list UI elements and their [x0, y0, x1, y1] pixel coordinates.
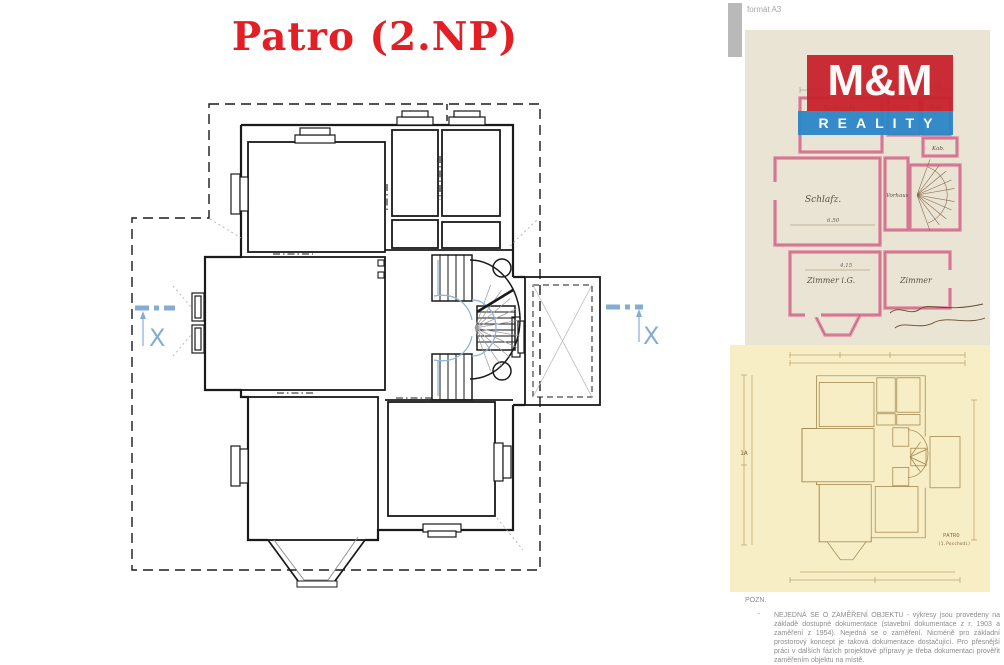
dimension: 4.15	[839, 263, 853, 269]
logo-mm: M&M	[807, 55, 953, 111]
historical-plan-1954: 1A PATRO (1.Poschodí)	[730, 345, 990, 592]
dimension: 6.50	[827, 218, 840, 224]
room-label: Zimmer	[899, 276, 933, 285]
yellow-ref-label: 1A	[740, 449, 748, 457]
room-label: Kab.	[931, 146, 945, 152]
yellow-dim-lines	[741, 352, 977, 583]
room-label: Vorhaus	[886, 193, 909, 199]
section-marker-left: X	[135, 308, 175, 352]
mm-reality-logo: M&M REALITY	[798, 55, 953, 135]
room-label: Zimmer i.G.	[806, 276, 855, 285]
room-label: Schlafz.	[805, 195, 841, 205]
note-body: NEJEDNÁ SE O ZAMĚŘENÍ OBJEKTU - výkresy …	[774, 611, 1000, 665]
yellow-caption-sub: (1.Poschodí)	[938, 540, 971, 547]
bay-window	[268, 537, 365, 587]
pink-stair-fan	[917, 159, 955, 230]
logo-reality: REALITY	[798, 111, 953, 135]
guide-lines	[173, 218, 539, 550]
note-heading: POZN.	[745, 597, 766, 604]
yellow-plan-building	[802, 376, 960, 560]
svg-text:X: X	[149, 324, 165, 352]
format-label: formát A3	[747, 5, 781, 14]
staircase	[432, 255, 520, 400]
document-panel: formát A3	[728, 0, 1004, 659]
section-marker-right: X	[606, 307, 659, 350]
room-walls	[205, 130, 513, 540]
terrace	[525, 277, 600, 405]
yellow-caption: PATRO	[943, 533, 960, 539]
yellow-plan-drawing: 1A PATRO (1.Poschodí)	[730, 345, 990, 592]
svg-text:X: X	[643, 322, 659, 350]
page-title: Patro (2.NP)	[195, 14, 555, 66]
scroll-thumb[interactable]	[728, 3, 742, 57]
note-bullet: -	[758, 611, 760, 618]
main-floor-plan: X X	[125, 88, 665, 608]
door-openings	[273, 156, 440, 460]
historical-plan-1903: Schlafz. Gard. Bad Kab. Schlafz. Vorhaus…	[745, 30, 990, 345]
